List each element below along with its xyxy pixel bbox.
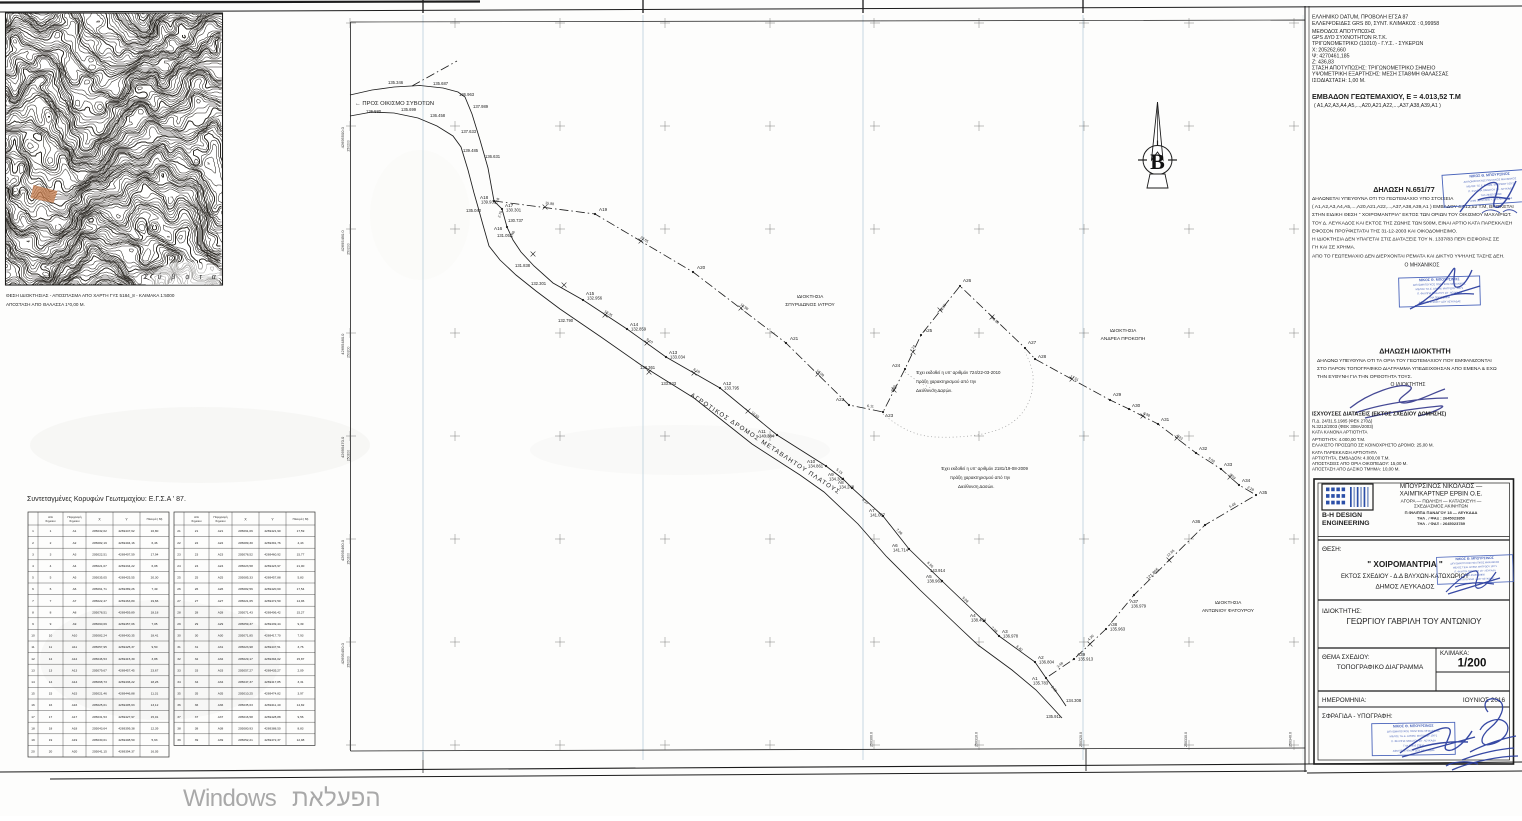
svg-text:205079,67: 205079,67 [92, 668, 107, 672]
svg-text:ΤΗΝ ΕΥΘΥΝΗ ΓΙΑ ΤΗΝ ΟΡΘΟΤΗΤΑ ΤΟ: ΤΗΝ ΕΥΘΥΝΗ ΓΙΑ ΤΗΝ ΟΡΘΟΤΗΤΑ ΤΟΥΣ. [1317, 374, 1412, 380]
svg-text:11,31: 11,31 [151, 692, 159, 696]
svg-text:A22: A22 [836, 397, 845, 402]
svg-text:205021,07: 205021,07 [92, 564, 107, 568]
svg-text:ΘΕΣΗ ΙΔΙΟΚΤΗΣΙΑΣ - ΑΠΟΣΠΑΣΜΑ Α: ΘΕΣΗ ΙΔΙΟΚΤΗΣΙΑΣ - ΑΠΟΣΠΑΣΜΑ ΑΠΟ ΧΑΡΤΗ Γ… [6, 293, 175, 298]
svg-text:136.978: 136.978 [1003, 634, 1019, 639]
svg-text:35: 35 [195, 692, 199, 696]
svg-text:ΣΦΡΑΓΙΔΑ - ΥΠΟΓΡΑΦΗ:: ΣΦΡΑΓΙΔΑ - ΥΠΟΓΡΑΦΗ: [1322, 713, 1393, 720]
svg-text:ΑΠΟΣΤΑΣΗ ΑΠΟ ΘΑΛΑΣΣΑ 1*0,00 Μ.: ΑΠΟΣΤΑΣΗ ΑΠΟ ΘΑΛΑΣΣΑ 1*0,00 Μ. [6, 302, 85, 307]
svg-text:136.963: 136.963 [459, 92, 475, 97]
svg-text:Διεύθυνση Δασών.: Διεύθυνση Δασών. [958, 484, 994, 489]
svg-text:ΤΟΥ Δ. ΛΕΥΚΑΔΟΣ ΚΑΙ ΕΚΤΟΣ ΤΗΣ: ΤΟΥ Δ. ΛΕΥΚΑΔΟΣ ΚΑΙ ΕΚΤΟΣ ΤΗΣ ΖΩΝΗΣ ΤΩΝ … [1312, 220, 1513, 226]
svg-text:ΤΟΠΟΓΡΑΦΙΚΟ ΔΙΑΓΡΑΜΜΑ: ΤΟΠΟΓΡΑΦΙΚΟ ΔΙΑΓΡΑΜΜΑ [1337, 664, 1424, 671]
svg-text:ΑΠΟΣΤΑΣΗ ΑΠΟ ΔΑΣΙΚΟ ΤΜΗΜΑ: 10,: ΑΠΟΣΤΑΣΗ ΑΠΟ ΔΑΣΙΚΟ ΤΜΗΜΑ: 10,00 Μ. [1312, 467, 1400, 472]
svg-text:Α31: Α31 [218, 645, 224, 649]
svg-text:Α22: Α22 [218, 541, 224, 545]
svg-text:29: 29 [177, 622, 181, 626]
svg-text:4269459,89: 4269459,89 [118, 610, 135, 614]
svg-text:Α30: Α30 [218, 634, 224, 638]
svg-text:131.838: 131.838 [515, 263, 531, 268]
svg-text:ΣΤΗΝ ΕΙΔΙΚΗ ΘΕΣΗ " ΧΟΙΡΟΜΑΝΤΡ: ΣΤΗΝ ΕΙΔΙΚΗ ΘΕΣΗ " ΧΟΙΡΟΜΑΝΤΡΙΑ" ΕΚΤΟΣ Τ… [1312, 212, 1512, 218]
svg-text:9: 9 [32, 622, 34, 626]
svg-text:42695500.0: 42695500.0 [340, 126, 345, 148]
svg-text:135.911: 135.911 [1046, 714, 1061, 719]
svg-text:13: 13 [49, 668, 53, 672]
svg-text:ΕΛΛΕΙΨΟΕΙΔΕΣ GRS 80, ΣΥΝΤ. ΚΛΙ: ΕΛΛΕΙΨΟΕΙΔΕΣ GRS 80, ΣΥΝΤ. ΚΛΙΜΑΚΟΣ : 0,… [1312, 21, 1439, 27]
svg-text:6.11: 6.11 [867, 404, 874, 409]
svg-text:205071,43: 205071,43 [238, 610, 253, 614]
svg-text:21: 21 [195, 529, 199, 533]
svg-text:Α5: Α5 [73, 576, 77, 580]
svg-text:3,88: 3,88 [151, 657, 157, 661]
svg-text:את: את [292, 785, 324, 812]
svg-text:ΑΠΟ ΤΟ ΓΕΩΤΕΜΑΧΙΟ ΔΕΝ ΔΙΕΡΧΟΝΤ: ΑΠΟ ΤΟ ΓΕΩΤΕΜΑΧΙΟ ΔΕΝ ΔΙΕΡΧΟΝΤΑΙ ΡΕΜΑΤΑ … [1312, 254, 1504, 260]
svg-text:17,59: 17,59 [297, 529, 305, 533]
svg-text:135.346: 135.346 [388, 80, 404, 85]
svg-text:28: 28 [177, 610, 181, 614]
svg-text:4269430,35: 4269430,35 [118, 634, 135, 638]
svg-text:135.687: 135.687 [433, 81, 449, 86]
svg-text:19: 19 [31, 738, 35, 742]
svg-text:4269417,85: 4269417,85 [264, 680, 281, 684]
svg-text:13,12: 13,12 [151, 703, 159, 707]
svg-text:32: 32 [195, 657, 199, 661]
svg-text:Α6: Α6 [73, 587, 77, 591]
svg-text:4269391,76: 4269391,76 [264, 541, 281, 545]
svg-text:ΕΛΛΗΝΙΚΟ DATUM, ΠΡΟΒΟΛΗ ΕΓΣΑ 8: ΕΛΛΗΝΙΚΟ DATUM, ΠΡΟΒΟΛΗ ΕΓΣΑ 87 [1312, 15, 1408, 21]
svg-text:16,05: 16,05 [151, 750, 159, 754]
svg-text:Α16: Α16 [72, 703, 78, 707]
svg-text:143.914: 143.914 [930, 568, 946, 573]
svg-text:7: 7 [32, 599, 34, 603]
svg-text:A27: A27 [1028, 340, 1037, 345]
svg-text:26: 26 [177, 587, 181, 591]
svg-text:ΔΗΛΩΝΩ ΥΠΕΥΘΥΝΑ ΟΤΙ ΤΑ ΟΡΙΑ ΤΟ: ΔΗΛΩΝΩ ΥΠΕΥΘΥΝΑ ΟΤΙ ΤΑ ΟΡΙΑ ΤΟΥ ΓΕΩΤΕΜΑΧ… [1317, 358, 1492, 364]
svg-text:250200: 250200 [347, 346, 351, 357]
svg-text:9,39: 9,39 [297, 622, 303, 626]
svg-text:Πλευρά ( Μ): Πλευρά ( Μ) [147, 517, 163, 521]
svg-text:( Α1,Α2,Α3,Α4,Α5,...,Α20,Α21,Α: ( Α1,Α2,Α3,Α4,Α5,...,Α20,Α21,Α22,...,Α37… [1314, 103, 1441, 109]
svg-text:ΜΠΟΥΡΣΙΝΟΣ ΝΙΚΟΛΑΟΣ —: ΜΠΟΥΡΣΙΝΟΣ ΝΙΚΟΛΑΟΣ — [1400, 483, 1483, 490]
svg-text:35: 35 [177, 692, 181, 696]
svg-text:ΔΗΛΩΝΕΤΑΙ ΥΠΕΥΘΥΝΑ ΟΤΙ ΤΟ ΓΕΩΤ: ΔΗΛΩΝΕΤΑΙ ΥΠΕΥΘΥΝΑ ΟΤΙ ΤΟ ΓΕΩΤΕΜΑΧΙΟ ΥΠΟ… [1312, 196, 1454, 202]
svg-text:205023,98: 205023,98 [238, 645, 253, 649]
svg-text:4269457,06: 4269457,06 [118, 622, 135, 626]
svg-text:130.737: 130.737 [508, 218, 524, 223]
svg-text:133.795: 133.795 [724, 386, 740, 391]
svg-text:Α4: Α4 [73, 564, 77, 568]
svg-text:24: 24 [177, 564, 181, 568]
svg-text:42695470.0: 42695470.0 [340, 436, 345, 458]
svg-text:14,82: 14,82 [297, 703, 305, 707]
svg-text:A26: A26 [963, 278, 972, 283]
svg-text:4269472,50: 4269472,50 [264, 599, 281, 603]
svg-text:Ψ: 4270461,185: Ψ: 4270461,185 [1312, 53, 1350, 59]
svg-text:133.633: 133.633 [661, 381, 677, 386]
svg-text:Α39: Α39 [218, 738, 224, 742]
svg-text:ΗΜΕΡΟΜΗΝΙΑ:: ΗΜΕΡΟΜΗΝΙΑ: [1322, 697, 1367, 704]
svg-text:205085,33: 205085,33 [238, 576, 253, 580]
svg-text:205082,19: 205082,19 [92, 541, 107, 545]
svg-text:8: 8 [50, 610, 52, 614]
svg-text:21,00: 21,00 [297, 564, 305, 568]
svg-text:הפעל: הפעל [324, 785, 381, 812]
svg-text:Διεύθυνση Δασών.: Διεύθυνση Δασών. [916, 388, 952, 393]
svg-text:Α20: Α20 [72, 750, 78, 754]
svg-text:22: 22 [177, 541, 181, 545]
svg-text:205021,65: 205021,65 [238, 599, 253, 603]
svg-text:18,41: 18,41 [151, 634, 159, 638]
svg-text:205061,71: 205061,71 [92, 587, 107, 591]
svg-text:205052,21: 205052,21 [238, 738, 253, 742]
svg-text:ΕΦΟΣΟΝ ΠΡΟΫΦΙΣΤΑΤΑΙ ΤΗΣ 31-12-: ΕΦΟΣΟΝ ΠΡΟΫΦΙΣΤΑΤΑΙ ΤΗΣ 31-12-2003 ΚΑΙ Ο… [1312, 227, 1457, 234]
svg-text:Π.Δ. 24/31.5.1985 (ΦΕΚ 270Δ): Π.Δ. 24/31.5.1985 (ΦΕΚ 270Δ) [1312, 419, 1373, 424]
svg-text:9: 9 [50, 622, 52, 626]
svg-text:4269405,63: 4269405,63 [118, 703, 135, 707]
svg-text:Η ΙΔΙΟΚΤΗΣΙΑ ΔΕΝ ΥΠΑΓΕΤΑΙ ΣΤΙΣ: Η ΙΔΙΟΚΤΗΣΙΑ ΔΕΝ ΥΠΑΓΕΤΑΙ ΣΤΙΣ ΔΙΑΤΑΞΕΙΣ… [1312, 237, 1500, 243]
svg-text:138.963: 138.963 [927, 579, 943, 584]
svg-text:4269425,37: 4269425,37 [118, 645, 135, 649]
svg-text:205030,01: 205030,01 [92, 738, 107, 742]
svg-text:Πλευρά ( Μ): Πλευρά ( Μ) [293, 517, 309, 521]
svg-text:4269474,82: 4269474,82 [264, 692, 281, 696]
svg-text:ΕΚΤΟΣ ΣΧΕΔΙΟΥ - Δ.Δ ΒΛΥΧΩΝ-ΚΑΤ: ΕΚΤΟΣ ΣΧΕΔΙΟΥ - Δ.Δ ΒΛΥΧΩΝ-ΚΑΤΩΧΩΡΙΟΥ [1341, 574, 1469, 580]
svg-text:4269394,02: 4269394,02 [264, 657, 281, 661]
svg-text:Α17: Α17 [72, 715, 78, 719]
svg-text:205022,47: 205022,47 [92, 599, 107, 603]
svg-text:Α25: Α25 [218, 576, 224, 580]
svg-text:205078,52: 205078,52 [238, 552, 253, 556]
svg-text:136.979: 136.979 [1131, 604, 1147, 609]
svg-text:132.859: 132.859 [631, 327, 647, 332]
svg-text:7,49: 7,49 [151, 587, 157, 591]
svg-text:205021,46: 205021,46 [92, 692, 107, 696]
svg-text:15: 15 [31, 692, 35, 696]
svg-text:4269472,37: 4269472,37 [264, 738, 281, 742]
svg-text:137.989: 137.989 [473, 104, 489, 109]
svg-text:22: 22 [195, 541, 199, 545]
svg-text:Α18: Α18 [72, 726, 78, 730]
svg-text:39: 39 [177, 738, 181, 742]
svg-text:5,63: 5,63 [151, 738, 157, 742]
svg-text:ΜΕΘΟΔΟΣ ΑΠΟΤΥΠΩΣΗΣ: ΜΕΘΟΔΟΣ ΑΠΟΤΥΠΩΣΗΣ [1312, 29, 1375, 35]
svg-text:ΕΜΒΑΔΟΝ ΓΕΩΤΕΜΑΧΙΟΥ, Ε = 4.013: ΕΜΒΑΔΟΝ ΓΕΩΤΕΜΑΧΙΟΥ, Ε = 4.013,52 Τ.Μ [1312, 92, 1461, 101]
svg-text:19,66: 19,66 [151, 599, 159, 603]
svg-text:3: 3 [32, 552, 34, 556]
svg-text:205031,53: 205031,53 [92, 715, 107, 719]
svg-text:Α24: Α24 [218, 564, 224, 568]
svg-text:A16: A16 [494, 226, 503, 231]
svg-text:4269394,37: 4269394,37 [118, 750, 135, 754]
svg-text:33: 33 [195, 668, 199, 672]
svg-text:34: 34 [195, 680, 199, 684]
svg-text:42695480.0: 42695480.0 [340, 333, 345, 355]
svg-text:ΙΔΙΟΚΤΗΤΗΣ:: ΙΔΙΟΚΤΗΤΗΣ: [1322, 608, 1362, 615]
svg-text:205025,01: 205025,01 [92, 703, 107, 707]
svg-text:Α35: Α35 [218, 692, 224, 696]
svg-text:Σημείου: Σημείου [45, 519, 56, 523]
svg-text:B-H DESIGN: B-H DESIGN [1322, 512, 1362, 519]
svg-text:Α7: Α7 [73, 599, 77, 603]
svg-text:205047,37: 205047,37 [238, 680, 253, 684]
svg-text:138.404: 138.404 [971, 618, 987, 623]
svg-text:ΚΛΙΜΑΚΑ:: ΚΛΙΜΑΚΑ: [1440, 650, 1470, 657]
svg-text:11: 11 [49, 645, 52, 649]
svg-text:139.485: 139.485 [463, 148, 479, 153]
svg-text:ΔΗΛΩΣΗ ΙΔΙΟΚΤΗΤΗ: ΔΗΛΩΣΗ ΙΔΙΟΚΤΗΤΗ [1379, 347, 1451, 356]
svg-text:← ΠΡΟΣ ΟΙΚΙΣΜΟ ΣΥΒΟΤΩΝ: ← ΠΡΟΣ ΟΙΚΙΣΜΟ ΣΥΒΟΤΩΝ [355, 101, 434, 107]
svg-text:23: 23 [177, 552, 181, 556]
svg-text:18: 18 [31, 726, 35, 730]
svg-text:Α32: Α32 [218, 657, 224, 661]
svg-text:14: 14 [49, 680, 53, 684]
svg-text:ΙΔΙΟΚΤΗΣΙΑ: ΙΔΙΟΚΤΗΣΙΑ [1215, 600, 1242, 606]
svg-text:4269439,44: 4269439,44 [264, 622, 281, 626]
svg-text:4,43: 4,43 [297, 541, 303, 545]
svg-text:Σημείου: Σημείου [191, 519, 202, 523]
svg-text:205082,24: 205082,24 [92, 634, 107, 638]
svg-text:135.699: 135.699 [401, 107, 417, 112]
svg-text:141.007: 141.007 [870, 513, 886, 518]
svg-text:205057,95: 205057,95 [92, 645, 107, 649]
svg-text:4269436,22: 4269436,22 [118, 680, 135, 684]
svg-text:ΥΨΟΜΕΤΡΙΚΗ ΕΞΑΡΤΗΣΗΣ: ΜΕΣΗ ΣΤΑ: ΥΨΟΜΕΤΡΙΚΗ ΕΞΑΡΤΗΣΗΣ: ΜΕΣΗ ΣΤΑΘΜΗ ΘΑΛΑΣΣ… [1312, 72, 1449, 78]
svg-text:15,87: 15,87 [297, 657, 305, 661]
svg-text:Σ ύ β ο τ α: Σ ύ β ο τ α [143, 273, 220, 281]
svg-text:250200: 250200 [347, 243, 351, 254]
svg-text:ΑΠΟΣΤΑΣΕΙΣ ΑΠΟ ΟΡΙΑ ΟΙΚΟΠΕΔΟΥ:: ΑΠΟΣΤΑΣΕΙΣ ΑΠΟ ΟΡΙΑ ΟΙΚΟΠΕΔΟΥ: 15,00 Μ. [1312, 461, 1408, 466]
svg-text:ΓΗ ΚΑΙ ΣΕ ΧΡΗΜΑ.: ΓΗ ΚΑΙ ΣΕ ΧΡΗΜΑ. [1312, 245, 1355, 251]
svg-text:2: 2 [50, 541, 52, 545]
svg-text:A24: A24 [892, 363, 901, 368]
svg-text:4269428,88: 4269428,88 [264, 715, 281, 719]
svg-text:37: 37 [195, 715, 199, 719]
svg-text:4269463,80: 4269463,80 [118, 599, 135, 603]
svg-text:14,96: 14,96 [297, 599, 305, 603]
svg-text:13: 13 [31, 668, 35, 672]
svg-text:250310.0: 250310.0 [974, 732, 978, 747]
svg-text:39: 39 [195, 738, 199, 742]
svg-text:1: 1 [50, 529, 52, 533]
svg-text:ΝΙΚΟΣ Θ. ΜΠΟΥΡΣΙΝΟΣ: ΝΙΚΟΣ Θ. ΜΠΟΥΡΣΙΝΟΣ [1393, 724, 1434, 729]
svg-text:250340.0: 250340.0 [1289, 732, 1293, 747]
svg-text:11: 11 [31, 645, 34, 649]
svg-text:ΤΗΛ . / ΦΑΞ : 2645023850: ΤΗΛ . / ΦΑΞ : 2645023850 [1417, 516, 1466, 521]
svg-text:Α38: Α38 [218, 726, 224, 730]
svg-text:132.956: 132.956 [587, 296, 603, 301]
svg-text:ΑΝΔΡΕΑ ΠΡΟΚΟΠΗ: ΑΝΔΡΕΑ ΠΡΟΚΟΠΗ [1101, 336, 1146, 342]
svg-text:18,26: 18,26 [151, 680, 159, 684]
svg-text:4269415,30: 4269415,30 [118, 657, 135, 661]
svg-text:Α15: Α15 [72, 692, 78, 696]
svg-text:7: 7 [50, 599, 52, 603]
svg-text:4269421,90: 4269421,90 [264, 529, 281, 533]
svg-text:4269425,55: 4269425,55 [118, 576, 135, 580]
svg-text:134.861: 134.861 [808, 464, 824, 469]
svg-text:3: 3 [50, 552, 52, 556]
svg-text:1/200: 1/200 [1458, 658, 1487, 670]
svg-text:3,97: 3,97 [297, 692, 303, 696]
svg-text:4269447,62: 4269447,62 [118, 529, 135, 533]
svg-text:250330.0: 250330.0 [1184, 732, 1188, 747]
svg-text:ΑΡΤΙΟΤΗΤΑ: 4.000,00 Τ.Μ.: ΑΡΤΙΟΤΗΤΑ: 4.000,00 Τ.Μ. [1312, 437, 1365, 442]
svg-text:134.308: 134.308 [1066, 698, 1082, 703]
svg-text:A34: A34 [1242, 478, 1251, 483]
svg-text:250320.0: 250320.0 [1079, 732, 1083, 747]
svg-text:34: 34 [177, 680, 181, 684]
svg-text:ΚΑΤΑ ΠΑΡΕΚΚΛΙΣΗ ΑΡΤΙΟΤΗΤΑ: ΚΑΤΑ ΠΑΡΕΚΚΛΙΣΗ ΑΡΤΙΟΤΗΤΑ [1312, 450, 1377, 455]
svg-text:ΣΤΟ ΠΑΡΟΝ ΤΟΠΟΓΡΑΦΙΚΟ ΔΙΑΓΡΑΜΜ: ΣΤΟ ΠΑΡΟΝ ΤΟΠΟΓΡΑΦΙΚΟ ΔΙΑΓΡΑΜΜΑ ΥΠΕΔΕΙΧΘ… [1317, 366, 1497, 372]
svg-text:8,83: 8,83 [297, 726, 303, 730]
svg-text:Α34: Α34 [218, 680, 224, 684]
svg-text:205023,58: 205023,58 [238, 564, 253, 568]
svg-text:29: 29 [195, 622, 199, 626]
svg-text:Α33: Α33 [218, 668, 224, 672]
svg-text:15,01: 15,01 [151, 715, 159, 719]
svg-text:21: 21 [177, 529, 181, 533]
svg-text:205046,53: 205046,53 [92, 657, 107, 661]
svg-text:ΣΤΑΣΗ ΑΠΟΤΥΠΩΣΗΣ: ΤΡΙΓΩΝΟΜΕΤΡΙ: ΣΤΑΣΗ ΑΠΟΤΥΠΩΣΗΣ: ΤΡΙΓΩΝΟΜΕΤΡΙΚΟ ΣΗΜΕΙΟ [1312, 66, 1435, 72]
svg-text:31: 31 [177, 645, 181, 649]
svg-text:ΙΣΟΔΙΑΣΤΑΣΗ: 1,00 Μ.: ΙΣΟΔΙΑΣΤΑΣΗ: 1,00 Μ. [1312, 78, 1366, 84]
svg-text:ΑΡΤΙΟΤΗΤΑ, ΕΜΒΑΔΟΝ: 4.000,00 Τ: ΑΡΤΙΟΤΗΤΑ, ΕΜΒΑΔΟΝ: 4.000,00 Τ.Μ. [1312, 456, 1390, 461]
svg-text:9,56: 9,56 [297, 715, 303, 719]
svg-text:205029,17: 205029,17 [238, 657, 253, 661]
svg-text:205059,37: 205059,37 [238, 622, 253, 626]
svg-text:ΘΕΣΗ:: ΘΕΣΗ: [1322, 546, 1342, 553]
svg-text:A32: A32 [1199, 446, 1208, 451]
svg-text:4269460,92: 4269460,92 [264, 552, 281, 556]
svg-text:205043,64: 205043,64 [92, 726, 107, 730]
svg-text:1: 1 [32, 529, 34, 533]
svg-text:Χ: 205262,660: Χ: 205262,660 [1312, 47, 1346, 53]
svg-text:10: 10 [31, 634, 35, 638]
svg-text:250300.0: 250300.0 [870, 732, 874, 747]
svg-text:A28: A28 [1038, 354, 1047, 359]
svg-text:16,80: 16,80 [151, 529, 159, 533]
svg-text:ΣΠΥΡΙΔΩΝΟΣ ΙΑΤΡΟΥ: ΣΠΥΡΙΔΩΝΟΣ ΙΑΤΡΟΥ [785, 302, 835, 308]
svg-text:4269457,88: 4269457,88 [264, 576, 281, 580]
svg-text:Α11: Α11 [72, 645, 78, 649]
svg-text:Έχει εκδοθεί η υπ' αριθμόν 218: Έχει εκδοθεί η υπ' αριθμόν 2181/19-08-20… [940, 466, 1028, 471]
svg-text:Α3: Α3 [73, 552, 77, 556]
svg-text:205035,63: 205035,63 [238, 703, 253, 707]
svg-text:Α10: Α10 [72, 634, 78, 638]
svg-text:4269420,60: 4269420,60 [264, 587, 281, 591]
svg-text:Ο ΜΗΧΑΝΙΚΟΣ: Ο ΜΗΧΑΝΙΚΟΣ [1405, 263, 1440, 269]
svg-text:25: 25 [177, 576, 181, 580]
svg-text:Α19: Α19 [72, 738, 78, 742]
svg-text:ΔΗΜΟΣ ΛΕΥΚΑΔΟΣ: ΔΗΜΟΣ ΛΕΥΚΑΔΟΣ [1376, 584, 1435, 591]
svg-text:15: 15 [49, 692, 53, 696]
svg-text:18,18: 18,18 [151, 610, 159, 614]
svg-text:4269447,51: 4269447,51 [264, 645, 281, 649]
svg-text:133.034: 133.034 [670, 355, 686, 360]
svg-text:Σημείου: Σημείου [69, 519, 80, 523]
svg-text:134.248: 134.248 [839, 485, 855, 490]
svg-text:20,30: 20,30 [151, 576, 159, 580]
svg-text:A33: A33 [1224, 462, 1233, 467]
svg-text:Α1: Α1 [73, 529, 77, 533]
svg-text:4: 4 [32, 564, 34, 568]
svg-text:Α29: Α29 [218, 622, 224, 626]
svg-text:Α23: Α23 [218, 552, 224, 556]
svg-text:7,05: 7,05 [151, 622, 157, 626]
svg-text:Α13: Α13 [72, 668, 78, 672]
svg-text:23: 23 [195, 552, 199, 556]
svg-text:A36: A36 [1192, 519, 1201, 524]
svg-text:2,09: 2,09 [297, 668, 303, 672]
svg-text:12: 12 [49, 657, 53, 661]
svg-text:136.458: 136.458 [430, 113, 446, 118]
svg-text:ΘΕΜΑ ΣΧΕΔΙΟΥ:: ΘΕΜΑ ΣΧΕΔΙΟΥ: [1322, 654, 1370, 661]
svg-text:4269389,26: 4269389,26 [118, 587, 135, 591]
svg-text:Β: Β [1150, 149, 1165, 174]
svg-text:ΔΗΛΩΣΗ Ν.651/77: ΔΗΛΩΣΗ Ν.651/77 [1373, 185, 1435, 194]
svg-text:ΣΧΕΔΙΑΣΜΟΣ ΑΚΙΝΗΤΩΝ: ΣΧΕΔΙΑΣΜΟΣ ΑΚΙΝΗΤΩΝ [1414, 504, 1468, 509]
svg-text:17,54: 17,54 [297, 587, 305, 591]
svg-text:ΙΔΙΟΚΤΗΣΙΑ: ΙΔΙΟΚΤΗΣΙΑ [1110, 328, 1137, 334]
svg-text:14: 14 [31, 680, 35, 684]
svg-text:20: 20 [49, 750, 53, 754]
svg-text:16: 16 [49, 703, 53, 707]
svg-text:20: 20 [31, 750, 35, 754]
svg-text:132.790: 132.790 [558, 318, 574, 323]
svg-text:205022,51: 205022,51 [92, 552, 107, 556]
svg-text:31: 31 [195, 645, 199, 649]
svg-text:30: 30 [195, 634, 199, 638]
svg-text:Συντεταγμένες Κορυφών Γεωτεμαχ: Συντεταγμένες Κορυφών Γεωτεμαχίου: Ε.Γ.Σ… [27, 495, 186, 503]
svg-text:25: 25 [195, 576, 199, 580]
svg-text:135.913: 135.913 [1078, 657, 1094, 662]
svg-text:16: 16 [31, 703, 35, 707]
svg-text:4269457,45: 4269457,45 [118, 668, 135, 672]
svg-text:A30: A30 [1132, 403, 1141, 408]
svg-text:Α14: Α14 [72, 680, 78, 684]
svg-text:24: 24 [195, 564, 199, 568]
svg-text:26: 26 [195, 587, 199, 591]
svg-text:12,39: 12,39 [151, 726, 159, 730]
svg-text:15,77: 15,77 [297, 552, 305, 556]
svg-text:Ζ: 436,83: Ζ: 436,83 [1312, 60, 1334, 66]
svg-text:ΙΔΙΟΚΤΗΣΙΑ: ΙΔΙΟΚΤΗΣΙΑ [797, 294, 824, 300]
svg-text:28: 28 [195, 610, 199, 614]
svg-text:Α37: Α37 [218, 715, 224, 719]
svg-text:6: 6 [32, 587, 34, 591]
svg-text:36: 36 [177, 703, 181, 707]
svg-text:33: 33 [177, 668, 181, 672]
svg-text:32: 32 [177, 657, 181, 661]
svg-text:Α12: Α12 [72, 657, 78, 661]
svg-text:Α9: Α9 [73, 622, 77, 626]
svg-text:4: 4 [50, 564, 52, 568]
svg-text:ΚΑΤΑ ΚΑΝΟΝΑ ΑΡΤΙΟΤΗΤΑ: ΚΑΤΑ ΚΑΝΟΝΑ ΑΡΤΙΟΤΗΤΑ [1312, 430, 1367, 435]
svg-text:141.714: 141.714 [893, 548, 909, 553]
svg-text:136.631: 136.631 [485, 154, 501, 159]
svg-text:131.057: 131.057 [497, 233, 513, 238]
svg-text:250200: 250200 [347, 140, 351, 151]
svg-text:4269434,22: 4269434,22 [118, 564, 135, 568]
svg-text:4269388,50: 4269388,50 [264, 726, 281, 730]
svg-text:130.301: 130.301 [506, 208, 522, 213]
svg-text:250200: 250200 [347, 450, 351, 461]
svg-text:6,46: 6,46 [151, 541, 157, 545]
svg-text:ΤΡΙΓΩΝΟΜΕΤΡΙΚΟ (11010) - Γ.Υ.Σ: ΤΡΙΓΩΝΟΜΕΤΡΙΚΟ (11010) - Γ.Υ.Σ. - ΣΥΚΕΡΩ… [1312, 41, 1423, 47]
svg-text:4269407,59: 4269407,59 [118, 552, 135, 556]
svg-text:136.804: 136.804 [1039, 660, 1055, 665]
svg-text:ΤΗΛ . / ΦΑΞ : 2645023789: ΤΗΛ . / ΦΑΞ : 2645023789 [1417, 521, 1466, 526]
svg-text:6: 6 [50, 587, 52, 591]
